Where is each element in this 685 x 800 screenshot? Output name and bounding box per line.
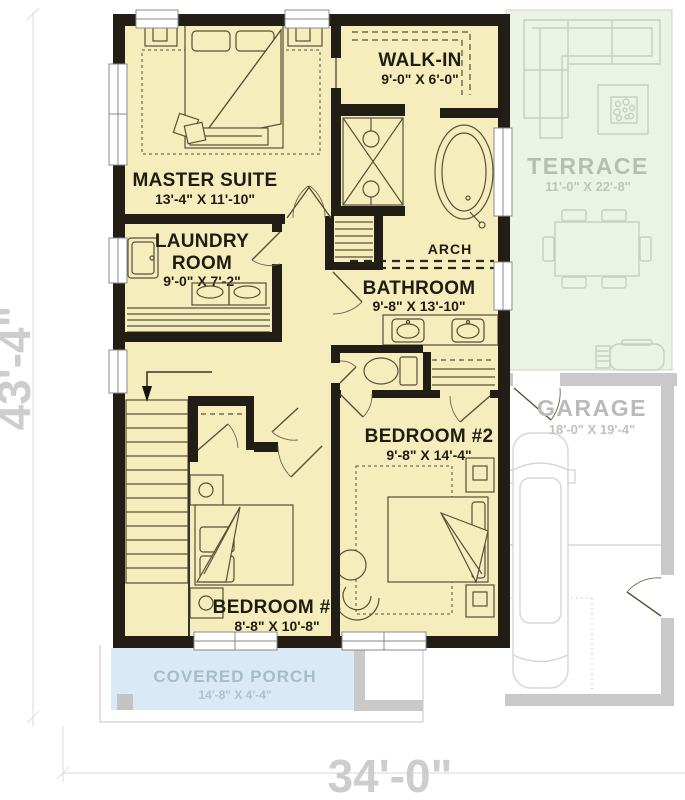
porch-dims: 14'-8" X 4'-4" (198, 688, 271, 702)
walkin-dims: 9'-0" X 6'-0" (381, 71, 459, 87)
bedroom2-label: BEDROOM #2 (365, 426, 494, 447)
terrace-area: TERRACE 11'-0" X 22'-8" (506, 10, 672, 370)
toilet (364, 357, 417, 385)
window-top-2 (285, 10, 329, 28)
terrace-label: TERRACE (527, 153, 649, 179)
master-dims: 13'-4" X 11'-10" (155, 191, 255, 207)
bedroom3-label: BEDROOM #3 (213, 597, 342, 618)
garage-wall-right-lower (661, 618, 674, 694)
arch-label: ARCH (428, 241, 472, 257)
walkin-label: WALK-IN (378, 50, 461, 71)
bedroom2-dims: 9'-8" X 14'-4" (386, 447, 471, 463)
window-right-1 (494, 128, 512, 216)
porch-label: COVERED PORCH (153, 667, 316, 686)
porch-column (117, 694, 133, 710)
floor-plan-page: TERRACE 11'-0" X 22'-8" (0, 0, 685, 800)
entry-wall-vertical (354, 645, 365, 702)
window-bottom-1 (194, 632, 277, 650)
garage-door-opening (513, 373, 560, 386)
terrace-dims: 11'-0" X 22'-8" (545, 179, 631, 194)
master-label: MASTER SUITE (132, 170, 277, 191)
floor-plan-drawing: TERRACE 11'-0" X 22'-8" (0, 0, 685, 800)
height-dimension: 43'-4" (0, 306, 40, 431)
covered-porch-area: COVERED PORCH 14'-8" X 4'-4" (100, 645, 423, 722)
garage-label: GARAGE (537, 395, 647, 421)
garage-area: GARAGE 18'-0" X 19'-4" (505, 373, 677, 706)
width-dimension: 34'-0" (328, 750, 453, 800)
garage-wall-right-upper (661, 386, 674, 575)
second-floor: MASTER SUITE 13'-4" X 11'-10" WALK-IN 9'… (109, 10, 512, 650)
car (506, 433, 575, 688)
bathroom-dims: 9'-8" X 13'-10" (372, 298, 465, 314)
window-left-2 (109, 238, 127, 283)
window-top-1 (136, 10, 178, 28)
window-right-2 (494, 262, 512, 310)
bathroom-label: BATHROOM (363, 278, 476, 299)
laundry-label-2: ROOM (172, 253, 232, 274)
window-bottom-2 (342, 632, 426, 650)
garage-wall-bottom (505, 694, 674, 706)
window-left-3 (109, 350, 127, 393)
window-left-1 (109, 64, 127, 165)
entry-wall-horizontal (354, 700, 423, 711)
laundry-label-1: LAUNDRY (155, 231, 249, 252)
garage-dims: 18'-0" X 19'-4" (549, 422, 635, 437)
